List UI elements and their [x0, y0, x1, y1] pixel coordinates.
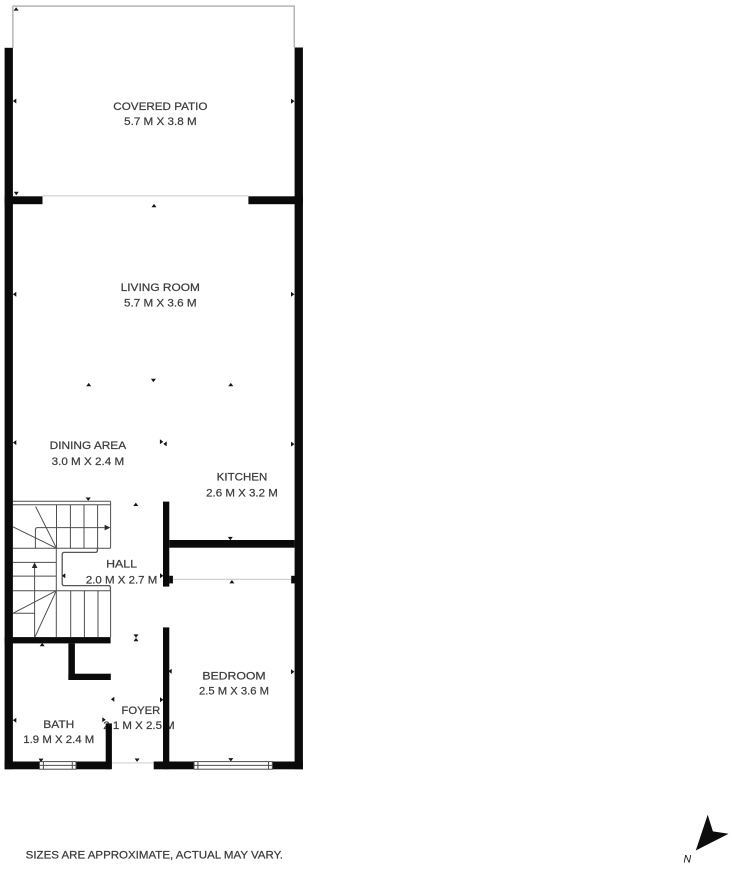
svg-text:2.5 M X 3.6 M: 2.5 M X 3.6 M: [199, 686, 269, 698]
svg-text:BATH: BATH: [43, 719, 74, 731]
svg-text:BEDROOM: BEDROOM: [202, 671, 265, 683]
svg-text:N: N: [684, 854, 692, 866]
svg-text:1.9 M X 2.4 M: 1.9 M X 2.4 M: [23, 734, 94, 746]
svg-text:HALL: HALL: [106, 559, 137, 571]
svg-text:FOYER: FOYER: [122, 705, 161, 717]
svg-text:SIZES ARE APPROXIMATE, ACTUAL: SIZES ARE APPROXIMATE, ACTUAL MAY VARY.: [26, 850, 283, 862]
svg-text:2.6 M X 3.2 M: 2.6 M X 3.2 M: [206, 488, 278, 500]
svg-text:KITCHEN: KITCHEN: [217, 472, 268, 484]
svg-text:5.7 M X 3.8 M: 5.7 M X 3.8 M: [124, 116, 197, 128]
svg-text:2.0 M X 2.7 M: 2.0 M X 2.7 M: [86, 574, 158, 586]
svg-text:COVERED PATIO: COVERED PATIO: [113, 101, 207, 113]
svg-text:3.0 M X 2.4 M: 3.0 M X 2.4 M: [52, 456, 125, 468]
svg-text:LIVING ROOM: LIVING ROOM: [121, 282, 200, 294]
svg-text:5.7 M X 3.6 M: 5.7 M X 3.6 M: [124, 298, 197, 310]
svg-text:DINING AREA: DINING AREA: [50, 440, 128, 452]
